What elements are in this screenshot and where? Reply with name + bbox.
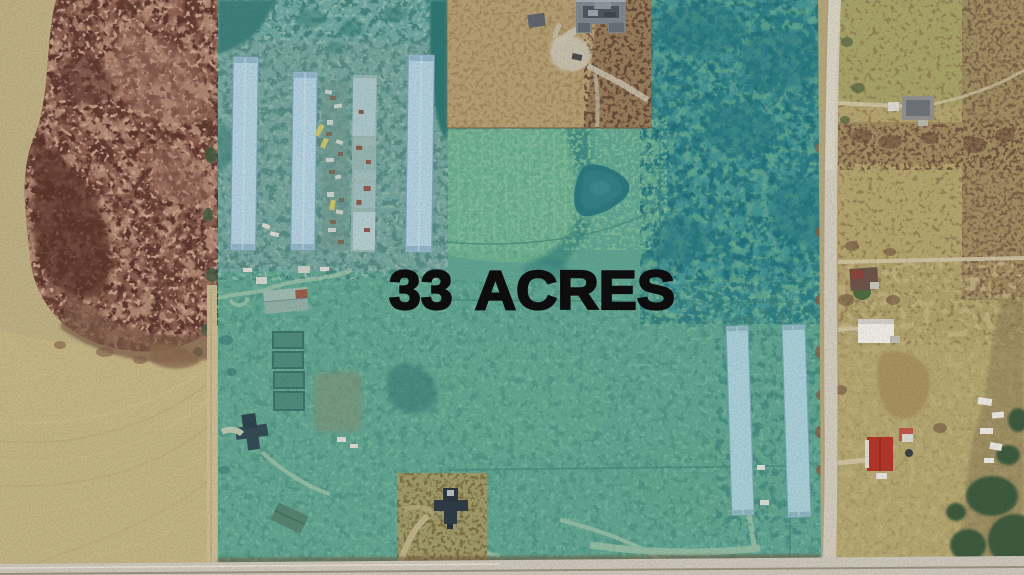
svg-text:33 ACRES: 33 ACRES	[389, 259, 675, 321]
